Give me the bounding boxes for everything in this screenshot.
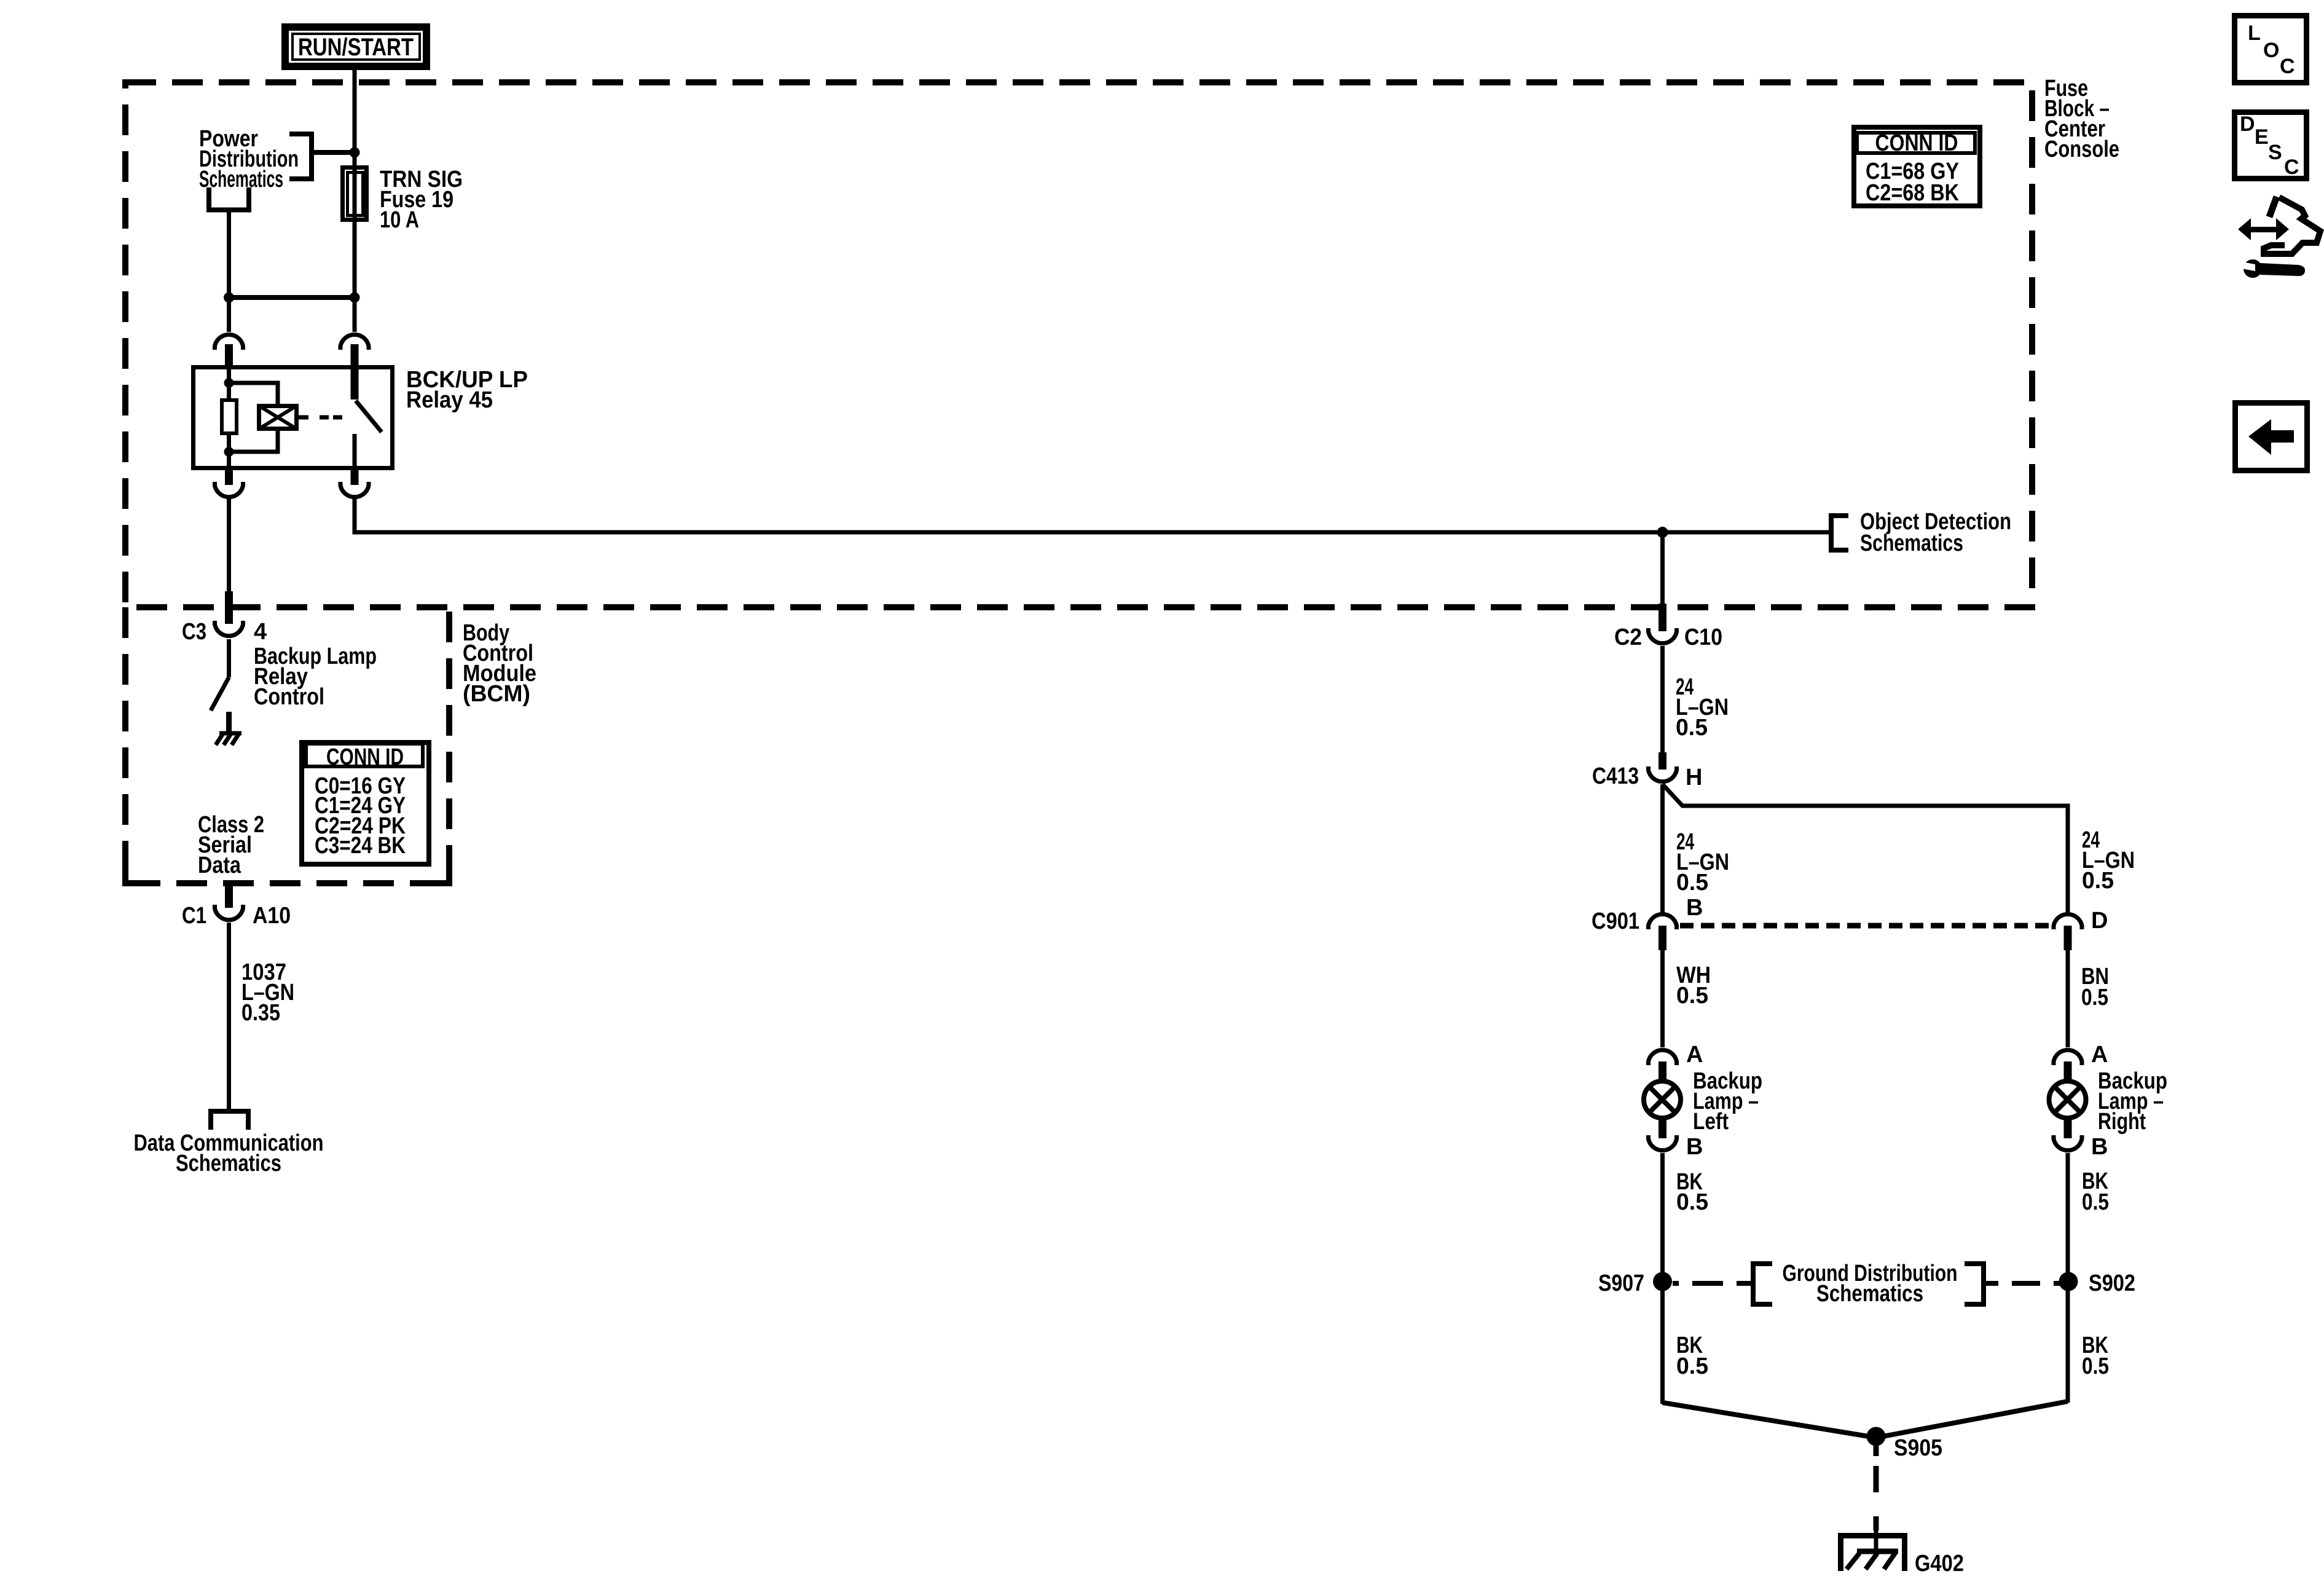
- svg-text:S: S: [2268, 141, 2282, 164]
- svg-text:10 A: 10 A: [380, 207, 419, 233]
- svg-text:0.5: 0.5: [2082, 1353, 2109, 1379]
- svg-text:C3: C3: [182, 619, 206, 645]
- svg-text:C2=68 BK: C2=68 BK: [1866, 180, 1959, 206]
- svg-text:0.5: 0.5: [1676, 870, 1708, 896]
- svg-text:(BCM): (BCM): [463, 681, 530, 707]
- svg-text:B: B: [1686, 895, 1703, 921]
- svg-text:CONN ID: CONN ID: [1875, 130, 1958, 156]
- svg-text:RUN/START: RUN/START: [298, 34, 414, 61]
- svg-text:0.35: 0.35: [241, 1000, 280, 1026]
- svg-text:0.5: 0.5: [2082, 868, 2114, 894]
- svg-text:H: H: [1686, 765, 1702, 790]
- svg-text:C1: C1: [182, 903, 206, 929]
- svg-text:Relay 45: Relay 45: [406, 387, 493, 413]
- svg-text:A: A: [2091, 1042, 2108, 1068]
- svg-text:C: C: [2280, 55, 2295, 78]
- svg-text:Schematics: Schematics: [199, 167, 283, 192]
- svg-text:C10: C10: [1684, 624, 1722, 650]
- svg-text:S905: S905: [1894, 1435, 1942, 1461]
- svg-text:0.5: 0.5: [2081, 985, 2108, 1010]
- svg-text:CONN ID: CONN ID: [326, 744, 404, 770]
- svg-text:A10: A10: [253, 903, 291, 929]
- svg-text:0.5: 0.5: [1676, 983, 1708, 1009]
- svg-text:C: C: [2284, 156, 2299, 179]
- svg-text:G402: G402: [1915, 1551, 1964, 1577]
- svg-text:E: E: [2255, 125, 2269, 149]
- svg-text:Left: Left: [1693, 1109, 1729, 1135]
- svg-text:O: O: [2263, 39, 2279, 62]
- svg-text:S907: S907: [1598, 1270, 1644, 1296]
- svg-text:C2: C2: [1614, 624, 1642, 650]
- svg-text:B: B: [1686, 1134, 1703, 1160]
- svg-text:0.5: 0.5: [2082, 1189, 2109, 1215]
- svg-text:0.5: 0.5: [1676, 1353, 1708, 1379]
- svg-text:C413: C413: [1592, 763, 1639, 789]
- svg-text:L: L: [2248, 22, 2261, 45]
- svg-text:0.5: 0.5: [1676, 715, 1708, 741]
- svg-text:Schematics: Schematics: [1860, 530, 1963, 556]
- svg-text:D: D: [2240, 112, 2255, 136]
- svg-text:Control: Control: [254, 684, 324, 710]
- svg-text:Data: Data: [198, 853, 241, 878]
- svg-text:C901: C901: [1592, 908, 1639, 934]
- svg-text:4: 4: [254, 619, 267, 645]
- svg-text:Schematics: Schematics: [1816, 1281, 1923, 1307]
- svg-text:0.5: 0.5: [1676, 1189, 1708, 1215]
- svg-text:C3=24 BK: C3=24 BK: [315, 833, 406, 859]
- svg-text:Console: Console: [2044, 136, 2119, 162]
- svg-text:B: B: [2091, 1134, 2108, 1160]
- svg-text:Schematics: Schematics: [176, 1151, 281, 1176]
- svg-text:Right: Right: [2098, 1109, 2146, 1135]
- svg-text:S902: S902: [2089, 1270, 2135, 1296]
- svg-text:D: D: [2091, 908, 2108, 934]
- svg-text:A: A: [1686, 1042, 1703, 1068]
